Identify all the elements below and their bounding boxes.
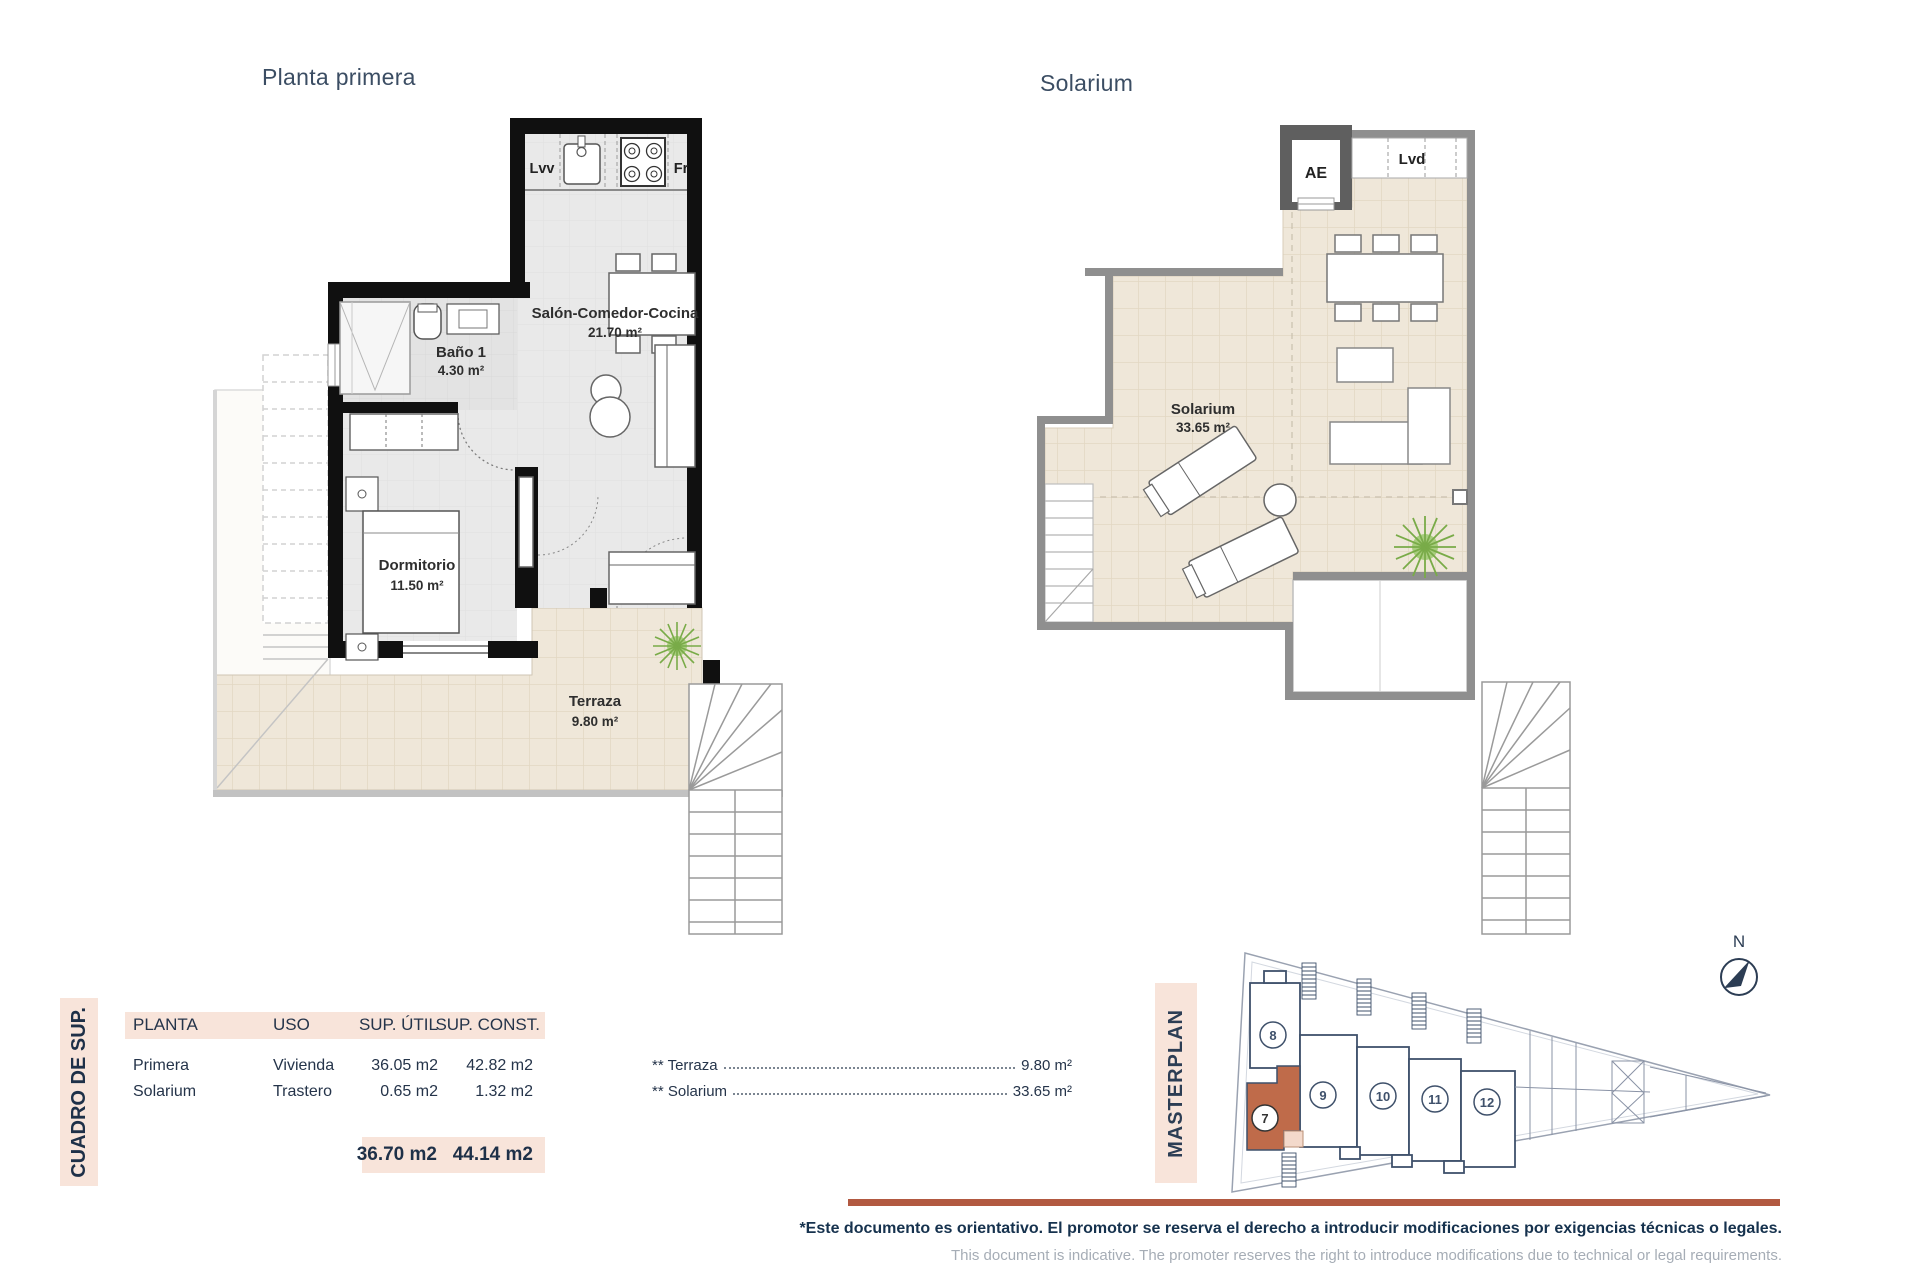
totals-bar: 36.70 m2 44.14 m2 <box>362 1137 545 1173</box>
disclaimer-es: *Este documento es orientativo. El promo… <box>799 1220 1782 1238</box>
room-label-terraza: Terraza <box>569 693 622 710</box>
round-table <box>1264 484 1296 516</box>
unit-8-label: 8 <box>1269 1028 1276 1043</box>
unit-11-label: 11 <box>1428 1092 1442 1107</box>
annotation-terraza: ** Terraza 9.80 m² <box>652 1050 1072 1076</box>
ae-label: AE <box>1305 165 1328 182</box>
plant-icon <box>653 622 701 670</box>
col-header-uso: USO <box>273 1015 310 1035</box>
fridge-label: Fr <box>674 161 689 177</box>
annotation-label: ** Terraza <box>652 1057 718 1076</box>
floor-plan-planta-primera: Lvv Fr <box>205 90 805 960</box>
cell-planta: Primera <box>133 1057 189 1075</box>
plan1-drawing: Lvv Fr <box>205 90 805 960</box>
room-area-terraza: 9.80 m² <box>572 714 619 729</box>
disclaimer-en: This document is indicative. The promote… <box>951 1247 1782 1264</box>
room-label-dormitorio: Dormitorio <box>379 557 456 574</box>
masterplan-sidebar: MASTERPLAN <box>1155 983 1197 1183</box>
annotation-solarium: ** Solarium 33.65 m² <box>652 1076 1072 1102</box>
unit-12-label: 12 <box>1480 1095 1494 1110</box>
cell-sup-util: 0.65 m2 <box>380 1083 438 1101</box>
summary-sidebar: CUADRO DE SUP. <box>60 998 98 1186</box>
toilet-icon <box>414 304 441 339</box>
solarium-stairwell <box>1482 682 1570 934</box>
summary-header-bar: PLANTA USO SUP. ÚTIL SUP. CONST. <box>125 1012 545 1039</box>
col-header-sup-const: SUP. CONST. <box>435 1015 540 1035</box>
masterplan-sidebar-title: MASTERPLAN <box>1165 1009 1188 1158</box>
compass-icon <box>1721 959 1757 995</box>
unit-10-label: 10 <box>1376 1089 1390 1104</box>
vanity-sink <box>447 304 499 334</box>
footer-divider <box>848 1199 1780 1206</box>
floor-plan-solarium: AE Lvd <box>1030 92 1580 942</box>
wardrobe <box>350 414 458 450</box>
plan2-drawing: AE Lvd <box>1030 92 1580 942</box>
north-indicator: N <box>1690 925 1790 1015</box>
dotted-leader <box>733 1093 1007 1095</box>
annotation-value: 9.80 m² <box>1021 1057 1072 1076</box>
plan1-title: Planta primera <box>262 64 416 91</box>
room-label-solarium: Solarium <box>1171 401 1235 418</box>
unit-7-label: 7 <box>1261 1111 1268 1126</box>
cell-sup-const: 1.32 m2 <box>475 1083 533 1101</box>
room-area-bano: 4.30 m² <box>438 363 485 378</box>
stove-icon <box>621 138 665 186</box>
unit-9-label: 9 <box>1319 1088 1326 1103</box>
solarium-plant-icon <box>1394 516 1456 578</box>
solarium-dining-table <box>1327 235 1443 321</box>
side-table-large <box>590 397 630 437</box>
col-header-planta: PLANTA <box>133 1015 198 1035</box>
lvd-label: Lvd <box>1399 151 1426 168</box>
col-header-sup-util: SUP. ÚTIL <box>359 1015 438 1035</box>
stairwell <box>689 684 782 934</box>
room-area-solarium: 33.65 m² <box>1176 420 1231 435</box>
area-annotations: ** Terraza 9.80 m² ** Solarium 33.65 m² <box>652 1050 1072 1102</box>
room-area-dormitorio: 11.50 m² <box>390 578 444 593</box>
total-sup-util: 36.70 m2 <box>357 1144 437 1166</box>
cell-uso: Trastero <box>273 1083 332 1101</box>
outdoor-edge <box>213 390 217 790</box>
dotted-leader <box>724 1067 1016 1069</box>
north-label: N <box>1733 932 1745 951</box>
lower-roof-section <box>1293 580 1467 692</box>
cell-sup-const: 42.82 m2 <box>466 1057 533 1075</box>
cell-sup-util: 36.05 m2 <box>371 1057 438 1075</box>
annotation-label: ** Solarium <box>652 1083 727 1102</box>
pillar-marker-right <box>1453 490 1467 504</box>
total-sup-const: 44.14 m2 <box>453 1144 533 1166</box>
summary-sidebar-title: CUADRO DE SUP. <box>68 1007 91 1178</box>
room-label-salon: Salón-Comedor-Cocina <box>532 305 699 322</box>
table-row: Primera Vivienda 36.05 m2 42.82 m2 <box>125 1057 545 1077</box>
pocket-door <box>519 477 533 567</box>
room-area-salon: 21.70 m² <box>588 325 643 340</box>
room-label-bano: Baño 1 <box>436 344 486 361</box>
floorplan-brochure-page: Planta primera Solarium <box>0 0 1920 1280</box>
table-row: Solarium Trastero 0.65 m2 1.32 m2 <box>125 1083 545 1103</box>
dishwasher-label: Lvv <box>530 161 555 177</box>
shower <box>340 302 410 394</box>
bedroom-slider <box>403 641 488 658</box>
cell-uso: Vivienda <box>273 1057 334 1075</box>
cell-planta: Solarium <box>133 1083 196 1101</box>
unit7-annex <box>1284 1131 1303 1147</box>
solarium-stairs-left <box>1045 484 1093 622</box>
annotation-value: 33.65 m² <box>1013 1083 1072 1102</box>
